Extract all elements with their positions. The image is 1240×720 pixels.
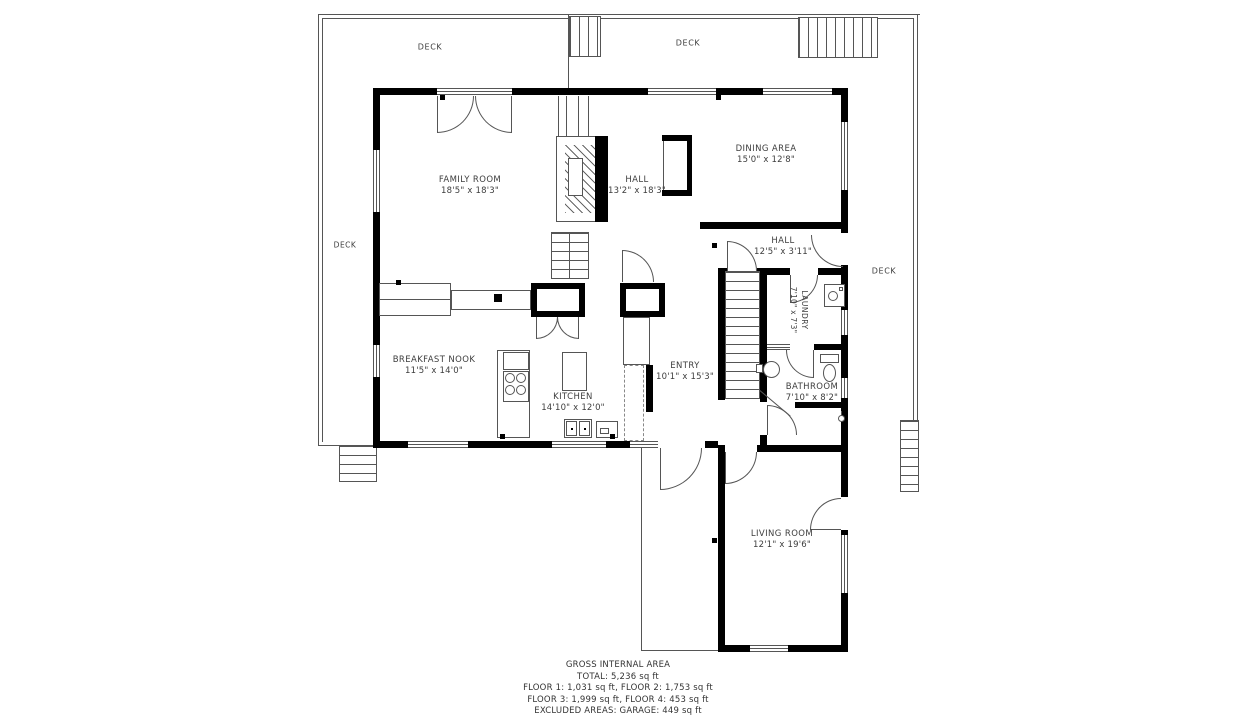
door-arc <box>725 452 757 484</box>
fireplace-wall <box>595 136 608 222</box>
wall-segment <box>373 212 380 345</box>
overhead-dashed-outline <box>624 365 644 441</box>
door-leaf <box>536 317 537 339</box>
sink-drain <box>584 428 586 430</box>
deck-label-top-left: DECK <box>418 42 442 53</box>
deck-edge-left-inner <box>322 18 323 442</box>
summary-title: GROSS INTERNAL AREA <box>523 660 713 672</box>
stairs-below-fireplace <box>551 232 589 279</box>
room-name: HALL <box>608 175 666 186</box>
room-label-family-room: FAMILY ROOM 18'5" x 18'3" <box>439 175 501 197</box>
room-dims: 10'1" x 15'3" <box>656 372 714 383</box>
interior-staircase <box>725 271 760 399</box>
room-name: KITCHEN <box>541 392 605 403</box>
door-leaf <box>437 96 438 133</box>
room-label-hall-lower: HALL 12'5" x 3'11" <box>754 236 812 258</box>
sink-tap <box>756 364 763 373</box>
toilet-bowl <box>823 364 836 382</box>
stairs-center-line <box>569 232 570 279</box>
deck-stairs-right <box>900 420 919 492</box>
counter-post <box>494 294 502 302</box>
room-name: BATHROOM <box>786 382 838 393</box>
entry-door-arc <box>660 448 702 490</box>
deck-edge-left-outer <box>318 14 319 446</box>
room-name: HALL <box>754 236 812 247</box>
wall-segment <box>705 441 718 448</box>
wall-segment <box>841 335 848 378</box>
door-arc <box>767 405 797 435</box>
wall-segment <box>718 445 725 652</box>
wall-segment <box>757 445 841 452</box>
room-dims: 12'5" x 3'11" <box>754 247 812 258</box>
door-arc <box>622 250 654 282</box>
room-dims: 12'1" x 19'6" <box>751 540 813 551</box>
kitchen-chase-left-inner <box>537 289 579 311</box>
deck-stairs-top-right <box>798 17 878 58</box>
window <box>750 645 788 652</box>
summary-floors-1-2: FLOOR 1: 1,031 sq ft, FLOOR 2: 1,753 sq … <box>523 683 713 695</box>
wall-segment <box>841 445 848 497</box>
room-label-breakfast-nook: BREAKFAST NOOK 11'5" x 14'0" <box>393 355 476 377</box>
wall-tick <box>716 95 721 100</box>
door-arc <box>811 235 843 267</box>
room-label-hall-upper: HALL 13'2" x 18'3" <box>608 175 666 197</box>
window <box>408 441 468 448</box>
window <box>841 378 848 398</box>
deck-label-left: DECK <box>334 240 357 251</box>
wall-segment <box>788 645 848 652</box>
room-label-entry: ENTRY 10'1" x 15'3" <box>656 361 714 383</box>
wall-tick <box>440 95 445 100</box>
room-name: LAUNDRY <box>799 287 810 334</box>
door-arc <box>786 350 814 378</box>
summary-total: TOTAL: 5,236 sq ft <box>523 672 713 684</box>
room-dims: 15'0" x 12'8" <box>736 155 797 166</box>
kitchen-island <box>562 352 587 391</box>
chimney-chase-line <box>588 96 589 136</box>
chimney-chase-line <box>558 96 559 136</box>
shower-arm-icon <box>841 411 842 416</box>
sink-drain <box>571 428 573 430</box>
wall-tick <box>610 434 615 439</box>
door-frame <box>437 88 512 95</box>
room-dims: 7'10" x 7'3" <box>788 287 799 334</box>
washer-drum <box>828 291 838 301</box>
firebox <box>568 158 583 196</box>
dishwasher-detail <box>600 428 609 434</box>
floor-plan: DECK DECK DECK DECK FAMILY ROOM 18'5" x … <box>0 0 1240 720</box>
room-name: BREAKFAST NOOK <box>393 355 476 366</box>
window <box>648 88 716 95</box>
door-arc <box>727 241 757 271</box>
wall-stub <box>646 365 653 412</box>
wall-segment <box>841 593 848 652</box>
door-leaf <box>725 452 726 484</box>
door-arc <box>557 317 579 339</box>
shower-head-icon <box>838 415 845 422</box>
summary-floors-3-4: FLOOR 3: 1,999 sq ft, FLOOR 4: 453 sq ft <box>523 695 713 707</box>
wall-segment <box>373 377 380 448</box>
oven <box>503 352 529 370</box>
room-dims: 14'10" x 12'0" <box>541 403 605 414</box>
window <box>373 345 380 377</box>
washer-control <box>839 287 843 291</box>
wall-tick <box>712 243 717 248</box>
window <box>373 150 380 212</box>
wall-laundry <box>760 271 767 345</box>
wall-segment <box>716 88 763 95</box>
room-label-kitchen: KITCHEN 14'10" x 12'0" <box>541 392 605 414</box>
burner <box>516 373 526 383</box>
door-leaf <box>767 405 768 435</box>
door-arc <box>475 96 512 133</box>
door-arc <box>437 96 474 133</box>
wall-segment <box>606 441 630 448</box>
wall-tick <box>712 538 717 543</box>
room-dims: 11'5" x 14'0" <box>393 366 476 377</box>
deck-edge-top-outer <box>318 14 920 15</box>
room-name: FAMILY ROOM <box>439 175 501 186</box>
room-dims: 7'10" x 8'2" <box>786 393 838 404</box>
window <box>841 535 848 593</box>
room-label-living-room: LIVING ROOM 12'1" x 19'6" <box>751 529 813 551</box>
entry-cabinet <box>623 317 650 365</box>
wall-segment <box>841 88 848 122</box>
chimney-chase-line <box>578 96 579 136</box>
kitchen-chase-right-inner <box>626 289 659 311</box>
door-leaf <box>622 250 623 282</box>
summary-excluded: EXCLUDED AREAS: GARAGE: 449 sq ft <box>523 706 713 718</box>
burner <box>516 385 526 395</box>
room-label-dining-area: DINING AREA 15'0" x 12'8" <box>736 144 797 166</box>
room-name: DINING AREA <box>736 144 797 155</box>
wall-stairwell <box>718 268 725 400</box>
wall-tick <box>396 280 401 285</box>
deck-label-right: DECK <box>872 266 896 277</box>
deck-stairs-bottom-left <box>339 445 377 482</box>
burner <box>505 373 515 383</box>
toilet-tank <box>820 354 839 363</box>
wall-bathroom <box>814 344 848 350</box>
counter-line <box>379 299 451 300</box>
wall-dining-hall <box>700 222 848 229</box>
wall-segment <box>512 88 648 95</box>
door-arc <box>536 317 558 339</box>
door-leaf <box>660 448 661 490</box>
porch-edge-horizontal <box>641 650 719 651</box>
sidelight-window <box>630 441 658 448</box>
area-summary: GROSS INTERNAL AREA TOTAL: 5,236 sq ft F… <box>523 660 713 718</box>
porch-edge-vertical <box>641 448 642 651</box>
window <box>841 122 848 190</box>
door-leaf <box>511 96 512 133</box>
room-name: LIVING ROOM <box>751 529 813 540</box>
door-leaf <box>810 529 841 530</box>
door-leaf <box>578 317 579 339</box>
deck-label-top-right: DECK <box>676 38 700 49</box>
window <box>841 310 848 335</box>
wall-segment <box>760 435 767 448</box>
wall-segment <box>718 645 750 652</box>
door-arc <box>810 498 841 530</box>
burner <box>505 385 515 395</box>
wall-segment <box>818 268 848 275</box>
window <box>763 88 832 95</box>
wall-segment <box>373 88 437 95</box>
window <box>552 441 606 448</box>
wall-tick <box>500 434 505 439</box>
counter <box>451 290 531 310</box>
chimney-chase-line <box>566 96 567 136</box>
wall-segment <box>468 441 552 448</box>
wall-segment <box>373 88 380 150</box>
room-dims: 18'5" x 18'3" <box>439 186 501 197</box>
room-label-laundry: LAUNDRY 7'10" x 7'3" <box>788 287 810 334</box>
room-name: ENTRY <box>656 361 714 372</box>
door-leaf <box>813 350 814 378</box>
deck-edge-right-inner <box>913 18 914 420</box>
deck-stairs-top-middle <box>569 16 601 57</box>
door-leaf <box>727 241 728 271</box>
wall-segment <box>373 441 408 448</box>
room-label-bathroom: BATHROOM 7'10" x 8'2" <box>786 382 838 404</box>
room-dims: 13'2" x 18'3" <box>608 186 666 197</box>
bathroom-sink <box>763 361 780 378</box>
